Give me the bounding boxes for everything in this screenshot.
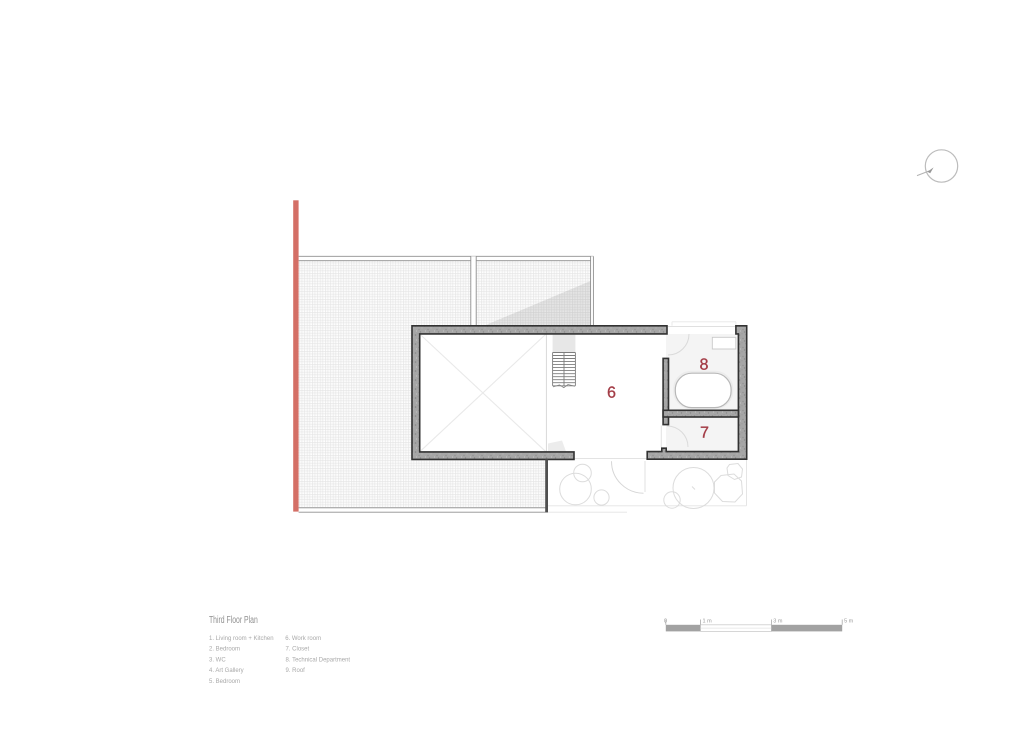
svg-text:9. Roof: 9. Roof xyxy=(286,668,306,674)
svg-text:4. Art Gallery: 4. Art Gallery xyxy=(209,668,244,674)
svg-text:3 m: 3 m xyxy=(773,619,783,625)
svg-text:Third Floor Plan: Third Floor Plan xyxy=(209,613,258,625)
svg-text:0: 0 xyxy=(664,619,667,625)
svg-text:2. Bedroom: 2. Bedroom xyxy=(209,647,240,653)
svg-text:1. Living room + Kitchen: 1. Living room + Kitchen xyxy=(209,636,274,642)
svg-text:1 m: 1 m xyxy=(703,619,713,625)
svg-text:5. Bedroom: 5. Bedroom xyxy=(209,679,240,685)
svg-text:3. WC: 3. WC xyxy=(209,657,226,663)
svg-text:8. Technical Department: 8. Technical Department xyxy=(286,657,351,663)
svg-text:7. Closet: 7. Closet xyxy=(286,647,310,653)
svg-text:5 m: 5 m xyxy=(844,619,854,625)
svg-text:6. Work room: 6. Work room xyxy=(285,636,321,642)
